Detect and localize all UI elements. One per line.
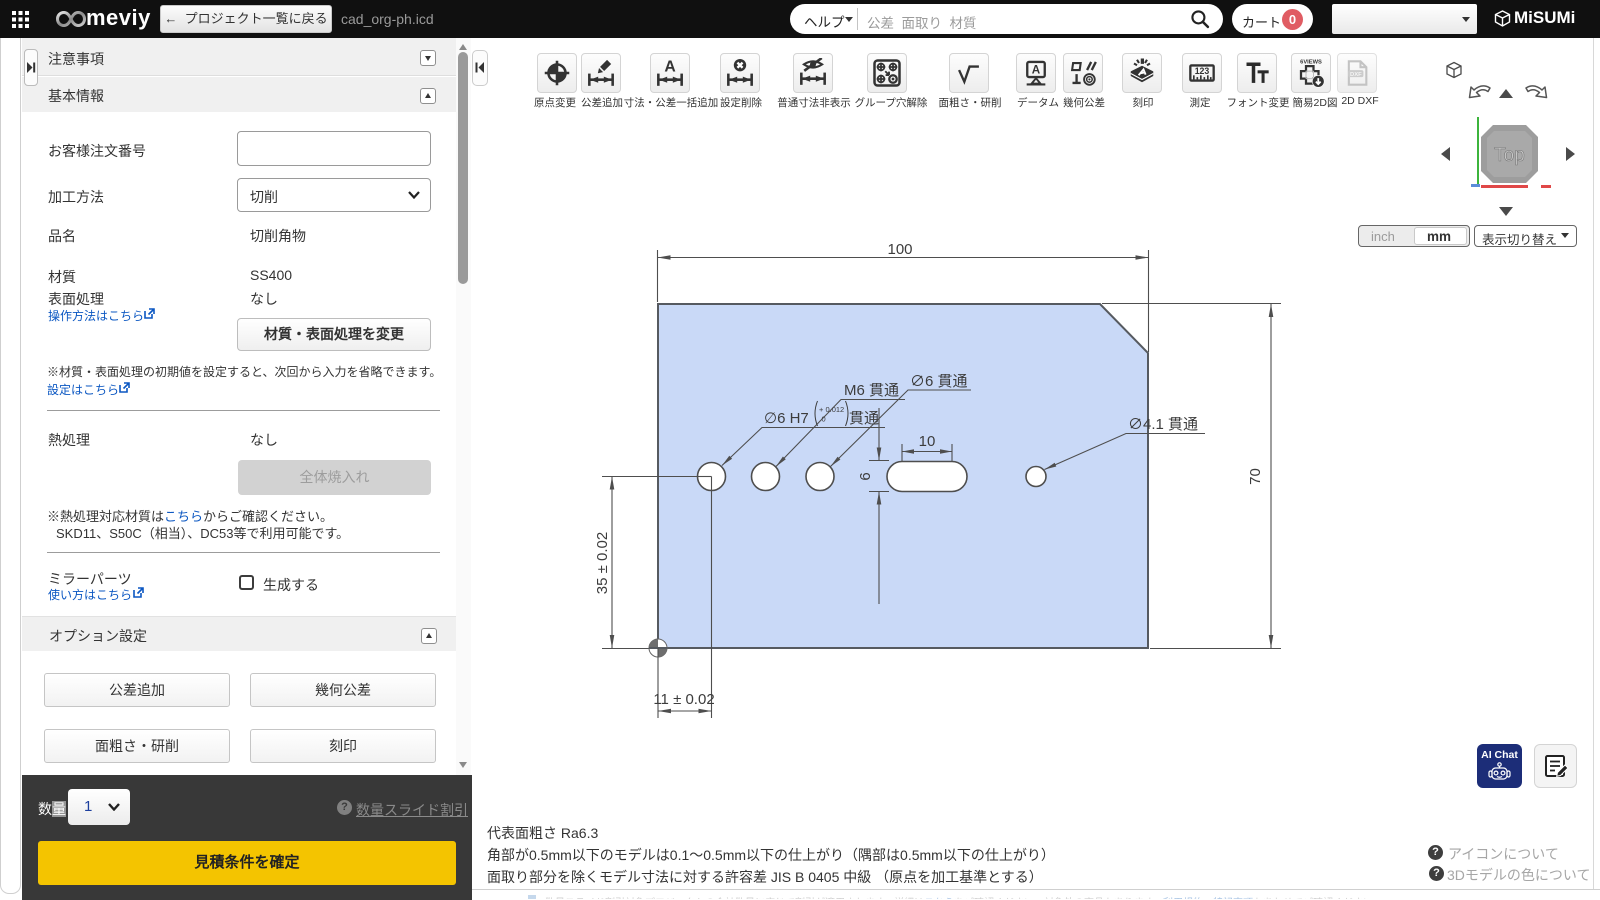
svg-text:∅6 貫通: ∅6 貫通: [910, 373, 968, 390]
svg-text:貫通: 貫通: [849, 410, 879, 427]
svg-text:∅6 H7: ∅6 H7: [764, 410, 809, 427]
svg-text:+ 0.012: + 0.012: [819, 405, 844, 414]
svg-text:100: 100: [887, 241, 912, 258]
svg-text:10: 10: [919, 433, 936, 450]
svg-text:11 ± 0.02: 11 ± 0.02: [653, 691, 714, 708]
svg-text:6: 6: [857, 472, 874, 480]
svg-text:M6 貫通: M6 貫通: [844, 382, 899, 399]
svg-text:35 ± 0.02: 35 ± 0.02: [594, 532, 611, 594]
svg-text:70: 70: [1247, 468, 1264, 485]
svg-text:∅4.1 貫通: ∅4.1 貫通: [1128, 416, 1198, 433]
svg-text:0: 0: [822, 415, 826, 424]
